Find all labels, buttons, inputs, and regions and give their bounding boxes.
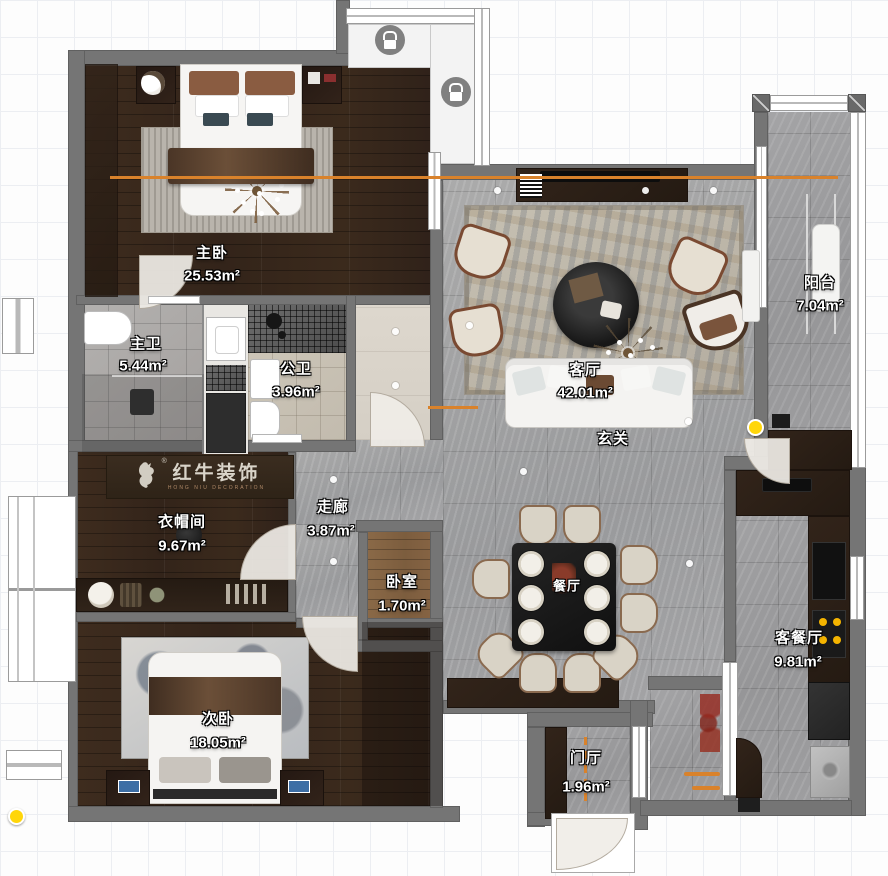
foyer-group: [545, 727, 630, 823]
dining-chair[interactable]: [563, 505, 601, 545]
ceiling-spot: [392, 382, 399, 389]
room-area-kitchen-dining: 9.81m²: [774, 654, 822, 671]
room-area-small-bedroom: 1.70m²: [378, 598, 426, 615]
ceiling-spot: [685, 418, 692, 425]
room-label-second-bedroom: 次卧: [202, 708, 234, 729]
bed-pillow: [245, 71, 295, 95]
window-balcony-right: [850, 112, 866, 468]
dining-chair[interactable]: [620, 593, 658, 633]
ceiling-spot: [642, 187, 649, 194]
brand-bull-icon: ®: [135, 461, 161, 494]
room-area-living: 42.01m²: [557, 385, 613, 402]
kitchen-corner-cabinet[interactable]: [736, 738, 762, 798]
reference-line-short: [428, 406, 478, 409]
bed-cushion: [203, 113, 229, 126]
dining-chair[interactable]: [519, 505, 557, 545]
decor-basket: [120, 583, 142, 607]
vanity-sink[interactable]: [206, 317, 246, 361]
shower-glass-line: [112, 375, 202, 377]
sink-basin: [215, 326, 239, 354]
room-area-public-bath: 3.96m²: [272, 384, 320, 401]
decor-plate: [141, 71, 165, 95]
room-area-master-bedroom: 25.53m²: [184, 268, 240, 285]
window-left-bath: [2, 298, 34, 354]
place-setting: [518, 551, 544, 577]
ceiling-spot: [330, 476, 337, 483]
camera-marker[interactable]: [747, 419, 764, 436]
room-label-living: 客厅: [569, 359, 601, 380]
balcony-box: [772, 414, 790, 428]
washer-door: [820, 760, 840, 780]
room-label-dining: 餐厅: [553, 576, 581, 595]
brand-name: 红牛装饰: [172, 464, 260, 483]
shower-mosaic-zone: [248, 305, 346, 353]
ceiling-spot: [494, 187, 501, 194]
wall-smallbedroom-top: [356, 520, 443, 532]
table-tray: [568, 273, 603, 304]
refrigerator[interactable]: [808, 682, 850, 740]
light-well-group: [650, 690, 724, 810]
room-area-balcony: 7.04m²: [796, 298, 844, 315]
lock-body: [384, 40, 396, 49]
lock-shackle: [449, 83, 463, 92]
room-area-corridor: 3.87m²: [307, 523, 355, 540]
master-bath-group: [82, 305, 204, 454]
nightstand[interactable]: [106, 770, 150, 806]
window-platform-right: [474, 8, 490, 166]
stove-burners: [819, 618, 827, 626]
reference-line-horizontal: [110, 176, 838, 179]
camera-marker[interactable]: [8, 808, 25, 825]
decor-plate: [88, 582, 114, 608]
bed-cushion: [247, 113, 273, 126]
balcony-corner-post-left: [752, 94, 770, 112]
room-label-public-bath: 公卫: [280, 358, 312, 379]
window-bottom-left: [6, 750, 62, 780]
kitchen-sink: [812, 542, 846, 600]
floor-plan-canvas[interactable]: ® 红牛装饰 HONG NIU DECORATION: [0, 0, 888, 876]
door-master-bath-slider[interactable]: [148, 296, 200, 304]
ceiling-spot: [710, 187, 717, 194]
brand-logo-banner: ® 红牛装饰 HONG NIU DECORATION: [106, 455, 294, 499]
ceiling-spot: [466, 322, 473, 329]
room-label-corridor: 走廊: [317, 496, 349, 517]
lock-icon[interactable]: [375, 25, 405, 55]
registered-mark: ®: [162, 458, 167, 465]
window-kitchen-right: [850, 556, 864, 620]
bed-pillow: [159, 757, 211, 783]
decor-plant-red: [700, 694, 720, 752]
ceiling-spot: [520, 468, 527, 475]
place-setting: [518, 585, 544, 611]
decor-lamp: [308, 72, 320, 84]
sofa-pillow: [620, 365, 651, 392]
bed-pillow: [219, 757, 271, 783]
bay-window-left: [8, 496, 76, 682]
room-area-second-bedroom: 18.05m²: [190, 735, 246, 752]
second-bedroom-group: [76, 622, 443, 806]
nightstand[interactable]: [302, 66, 342, 104]
brand-tagline: HONG NIU DECORATION: [168, 485, 265, 491]
dining-table[interactable]: [512, 543, 616, 651]
place-setting: [584, 585, 610, 611]
dining-chair[interactable]: [472, 559, 510, 599]
ceiling-spot: [330, 558, 337, 565]
room-label-kitchen-dining: 客餐厅: [775, 627, 823, 648]
cloakroom-group: ® 红牛装饰 HONG NIU DECORATION: [76, 452, 288, 612]
bed-bench: [153, 789, 277, 799]
decor-plant: [146, 584, 168, 606]
shower-head[interactable]: [266, 313, 282, 329]
second-wardrobe[interactable]: [362, 622, 443, 806]
room-label-foyer: 门厅: [570, 747, 602, 768]
bed-pillow: [189, 71, 239, 95]
side-table[interactable]: [742, 250, 760, 322]
ceiling-spot: [392, 328, 399, 335]
room-area-master-bath: 5.44m²: [119, 358, 167, 375]
ceiling-spot: [686, 560, 693, 567]
room-label-master-bath: 主卫: [130, 333, 162, 354]
wall-bottom-left: [68, 806, 460, 822]
place-setting: [584, 619, 610, 645]
room-area-foyer: 1.96m²: [562, 779, 610, 796]
kitchen-upper-cabinets[interactable]: [736, 470, 850, 516]
shower-fixture[interactable]: [130, 389, 154, 415]
room-label-balcony: 阳台: [804, 272, 836, 293]
master-wardrobe[interactable]: [85, 64, 118, 297]
room-label-small-bedroom: 卧室: [386, 571, 418, 592]
room-label-master-bedroom: 主卧: [196, 242, 228, 263]
place-setting: [518, 619, 544, 645]
lock-body: [450, 92, 462, 101]
mosaic-niche: [206, 365, 246, 391]
washing-machine[interactable]: [810, 746, 850, 798]
nightstand[interactable]: [280, 770, 324, 806]
room-label-cloakroom: 衣帽间: [158, 511, 206, 532]
decor-book: [324, 74, 336, 82]
table-decor: [600, 300, 623, 320]
foyer-closet[interactable]: [545, 727, 567, 819]
room-label-entry-hall: 玄关: [597, 428, 629, 449]
room-area-cloakroom: 9.67m²: [158, 538, 206, 555]
dining-chair[interactable]: [620, 545, 658, 585]
decor-frame: [118, 780, 140, 793]
wall-cloakroom-bottom: [76, 612, 296, 622]
decor-shelf: [684, 772, 720, 776]
wall-publicbath-hall: [346, 295, 356, 452]
window-foyer-sidelight: [632, 726, 646, 798]
decor-items: [226, 584, 266, 604]
window-top-center: [346, 8, 478, 24]
lounge-cushion: [698, 313, 738, 341]
master-bedroom-group: [85, 64, 430, 297]
dining-chair[interactable]: [519, 653, 557, 693]
nightstand[interactable]: [136, 66, 176, 104]
utility-strip-group: [204, 305, 248, 454]
fan-bulbs: [257, 191, 262, 196]
lock-shackle: [383, 31, 397, 40]
tv-console[interactable]: [516, 168, 688, 202]
lock-icon[interactable]: [441, 77, 471, 107]
window-balcony-top: [770, 95, 848, 111]
balcony-corner-post-right: [848, 94, 866, 112]
sofa-pillow: [652, 366, 687, 397]
decor-shelf: [692, 786, 720, 790]
cloakroom-shelf[interactable]: [76, 578, 288, 612]
decor-frame: [288, 780, 310, 793]
door-public-bath-slider[interactable]: [252, 434, 302, 443]
sofa-pillow: [512, 366, 547, 397]
laundry-cabinet[interactable]: [206, 393, 246, 453]
wall-kitchen-right: [848, 466, 866, 816]
toilet[interactable]: [84, 311, 132, 345]
place-setting: [584, 551, 610, 577]
